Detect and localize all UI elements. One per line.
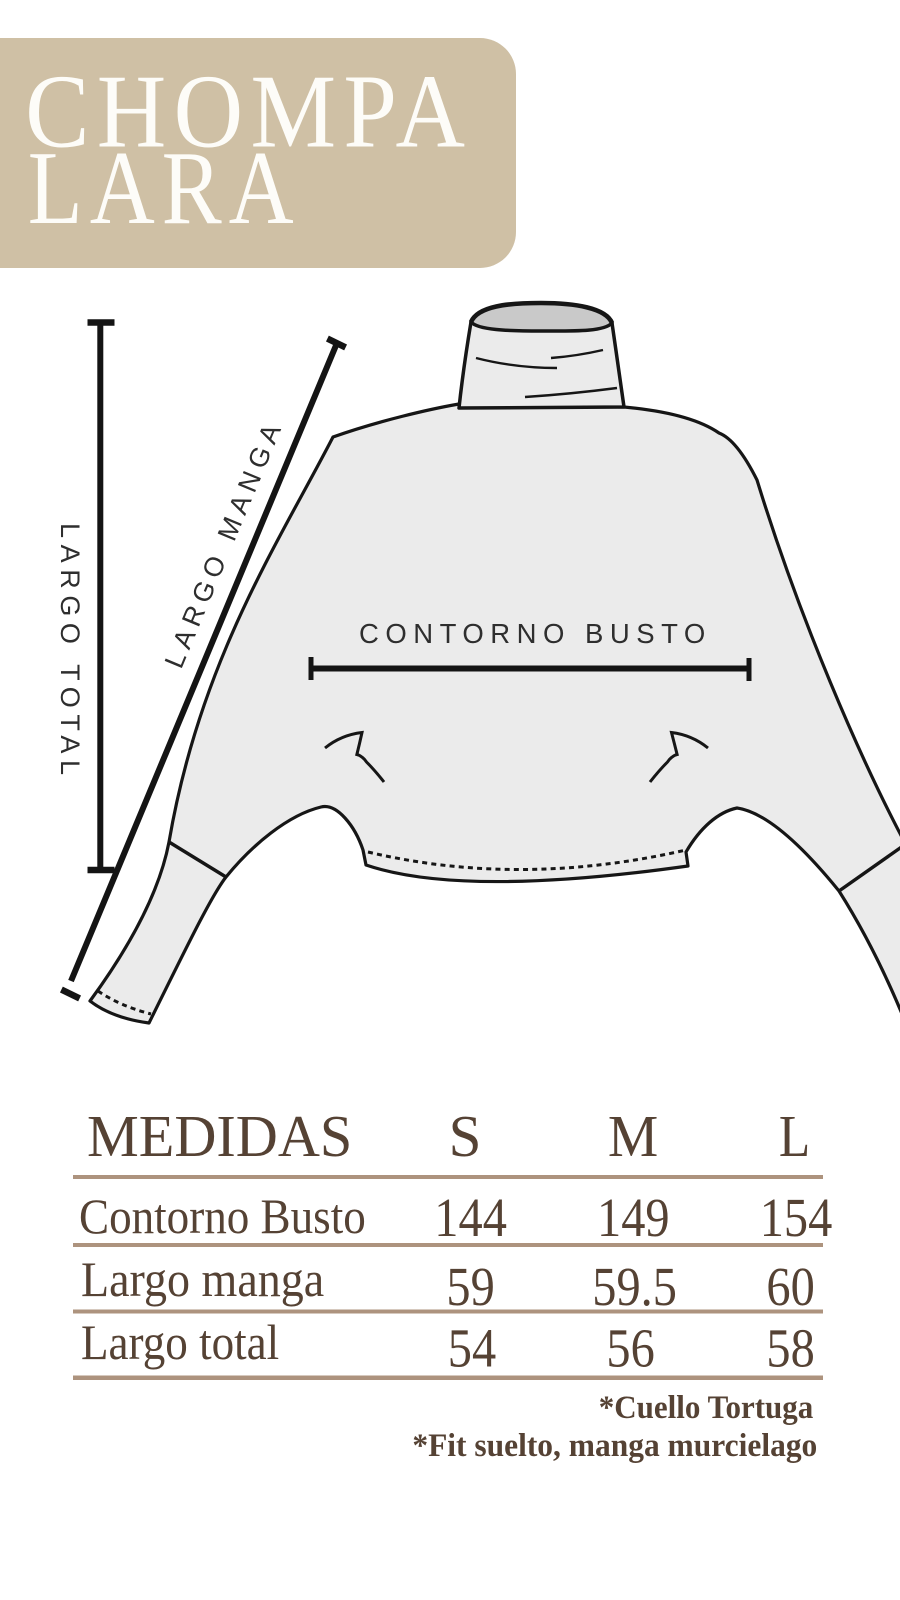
svg-text:*Cuello Tortuga: *Cuello Tortuga bbox=[599, 1388, 814, 1425]
svg-text:144: 144 bbox=[434, 1188, 507, 1249]
svg-text:60: 60 bbox=[766, 1257, 814, 1318]
svg-text:Contorno Busto: Contorno Busto bbox=[79, 1190, 366, 1244]
svg-text:*Fit suelto, manga murcielago: *Fit suelto, manga murcielago bbox=[412, 1426, 817, 1463]
svg-text:154: 154 bbox=[760, 1188, 833, 1249]
svg-text:CONTORNO BUSTO: CONTORNO BUSTO bbox=[359, 618, 712, 649]
svg-text:54: 54 bbox=[448, 1319, 496, 1380]
svg-text:56: 56 bbox=[606, 1319, 654, 1380]
svg-text:LARGO TOTAL: LARGO TOTAL bbox=[55, 523, 85, 782]
svg-text:59: 59 bbox=[446, 1257, 494, 1318]
svg-text:Largo manga: Largo manga bbox=[81, 1253, 324, 1308]
svg-text:149: 149 bbox=[597, 1188, 670, 1249]
svg-text:M: M bbox=[608, 1103, 658, 1169]
svg-text:S: S bbox=[449, 1103, 482, 1169]
svg-text:59.5: 59.5 bbox=[592, 1257, 677, 1318]
svg-text:Largo total: Largo total bbox=[81, 1316, 279, 1370]
svg-text:MEDIDAS: MEDIDAS bbox=[87, 1104, 352, 1169]
svg-text:58: 58 bbox=[766, 1319, 814, 1380]
svg-text:L: L bbox=[779, 1104, 810, 1169]
